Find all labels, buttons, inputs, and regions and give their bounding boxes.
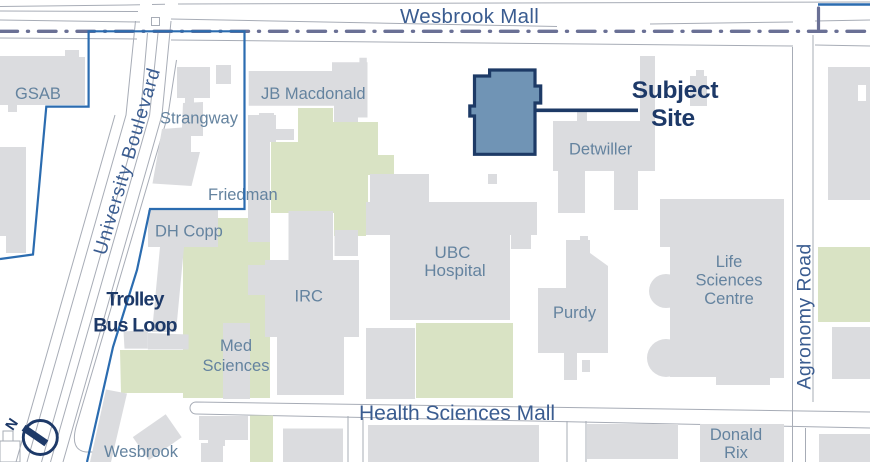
svg-text:Sciences: Sciences [203, 357, 270, 375]
svg-text:Donald: Donald [710, 426, 762, 444]
svg-text:Site: Site [651, 105, 695, 132]
svg-text:Agronomy Road: Agronomy Road [794, 243, 816, 389]
svg-text:DH Copp: DH Copp [155, 223, 223, 241]
svg-text:Friedman: Friedman [208, 186, 278, 204]
svg-text:Strangway: Strangway [160, 110, 239, 128]
svg-text:Centre: Centre [704, 290, 754, 308]
svg-text:Detwiller: Detwiller [569, 141, 633, 159]
svg-text:Subject: Subject [632, 77, 719, 104]
svg-text:IRC: IRC [295, 288, 324, 306]
svg-text:Wesbrook Mall: Wesbrook Mall [400, 5, 539, 28]
svg-text:GSAB: GSAB [15, 85, 61, 103]
svg-text:Bus Loop: Bus Loop [93, 315, 177, 337]
svg-text:Sciences: Sciences [696, 272, 763, 290]
svg-text:UBC: UBC [435, 243, 471, 262]
svg-text:Health Sciences Mall: Health Sciences Mall [359, 402, 555, 425]
svg-text:Purdy: Purdy [553, 304, 597, 322]
svg-text:Life: Life [716, 253, 743, 271]
svg-text:Wesbrook: Wesbrook [104, 443, 179, 461]
svg-text:JB Macdonald: JB Macdonald [261, 85, 366, 103]
svg-text:Trolley: Trolley [106, 289, 164, 311]
svg-text:Med: Med [220, 337, 252, 355]
svg-text:Rix: Rix [724, 444, 749, 462]
svg-text:Hospital: Hospital [424, 261, 485, 280]
